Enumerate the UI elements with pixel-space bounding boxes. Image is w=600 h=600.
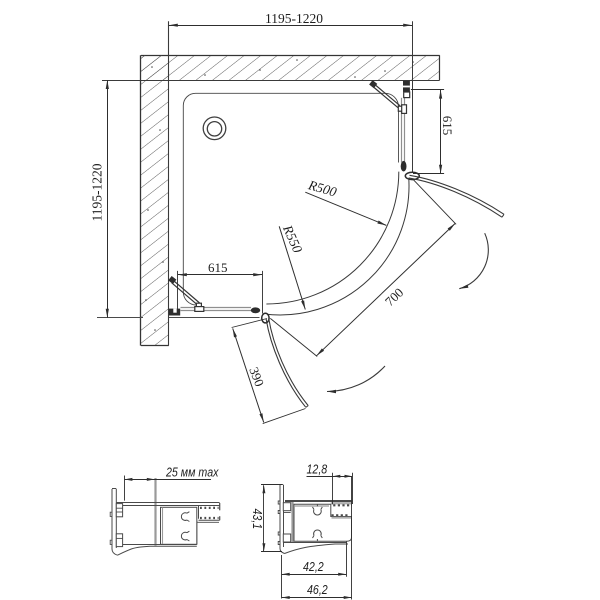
- svg-text:615: 615: [440, 116, 455, 136]
- svg-text:42,2: 42,2: [303, 559, 324, 574]
- svg-text:615: 615: [208, 260, 228, 275]
- svg-text:12,8: 12,8: [307, 461, 328, 476]
- svg-text:1195-1220: 1195-1220: [90, 163, 105, 221]
- svg-text:25 мм max: 25 мм max: [165, 464, 219, 479]
- svg-text:46,2: 46,2: [307, 582, 328, 597]
- svg-text:43,1: 43,1: [250, 509, 265, 530]
- svg-text:1195-1220: 1195-1220: [265, 11, 323, 26]
